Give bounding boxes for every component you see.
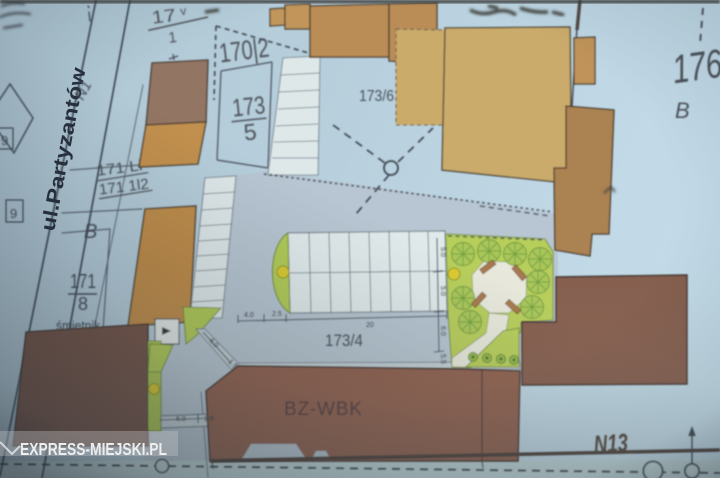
svg-text:EXPRESS-MIEJSKI.PL: EXPRESS-MIEJSKI.PL [20,439,167,459]
